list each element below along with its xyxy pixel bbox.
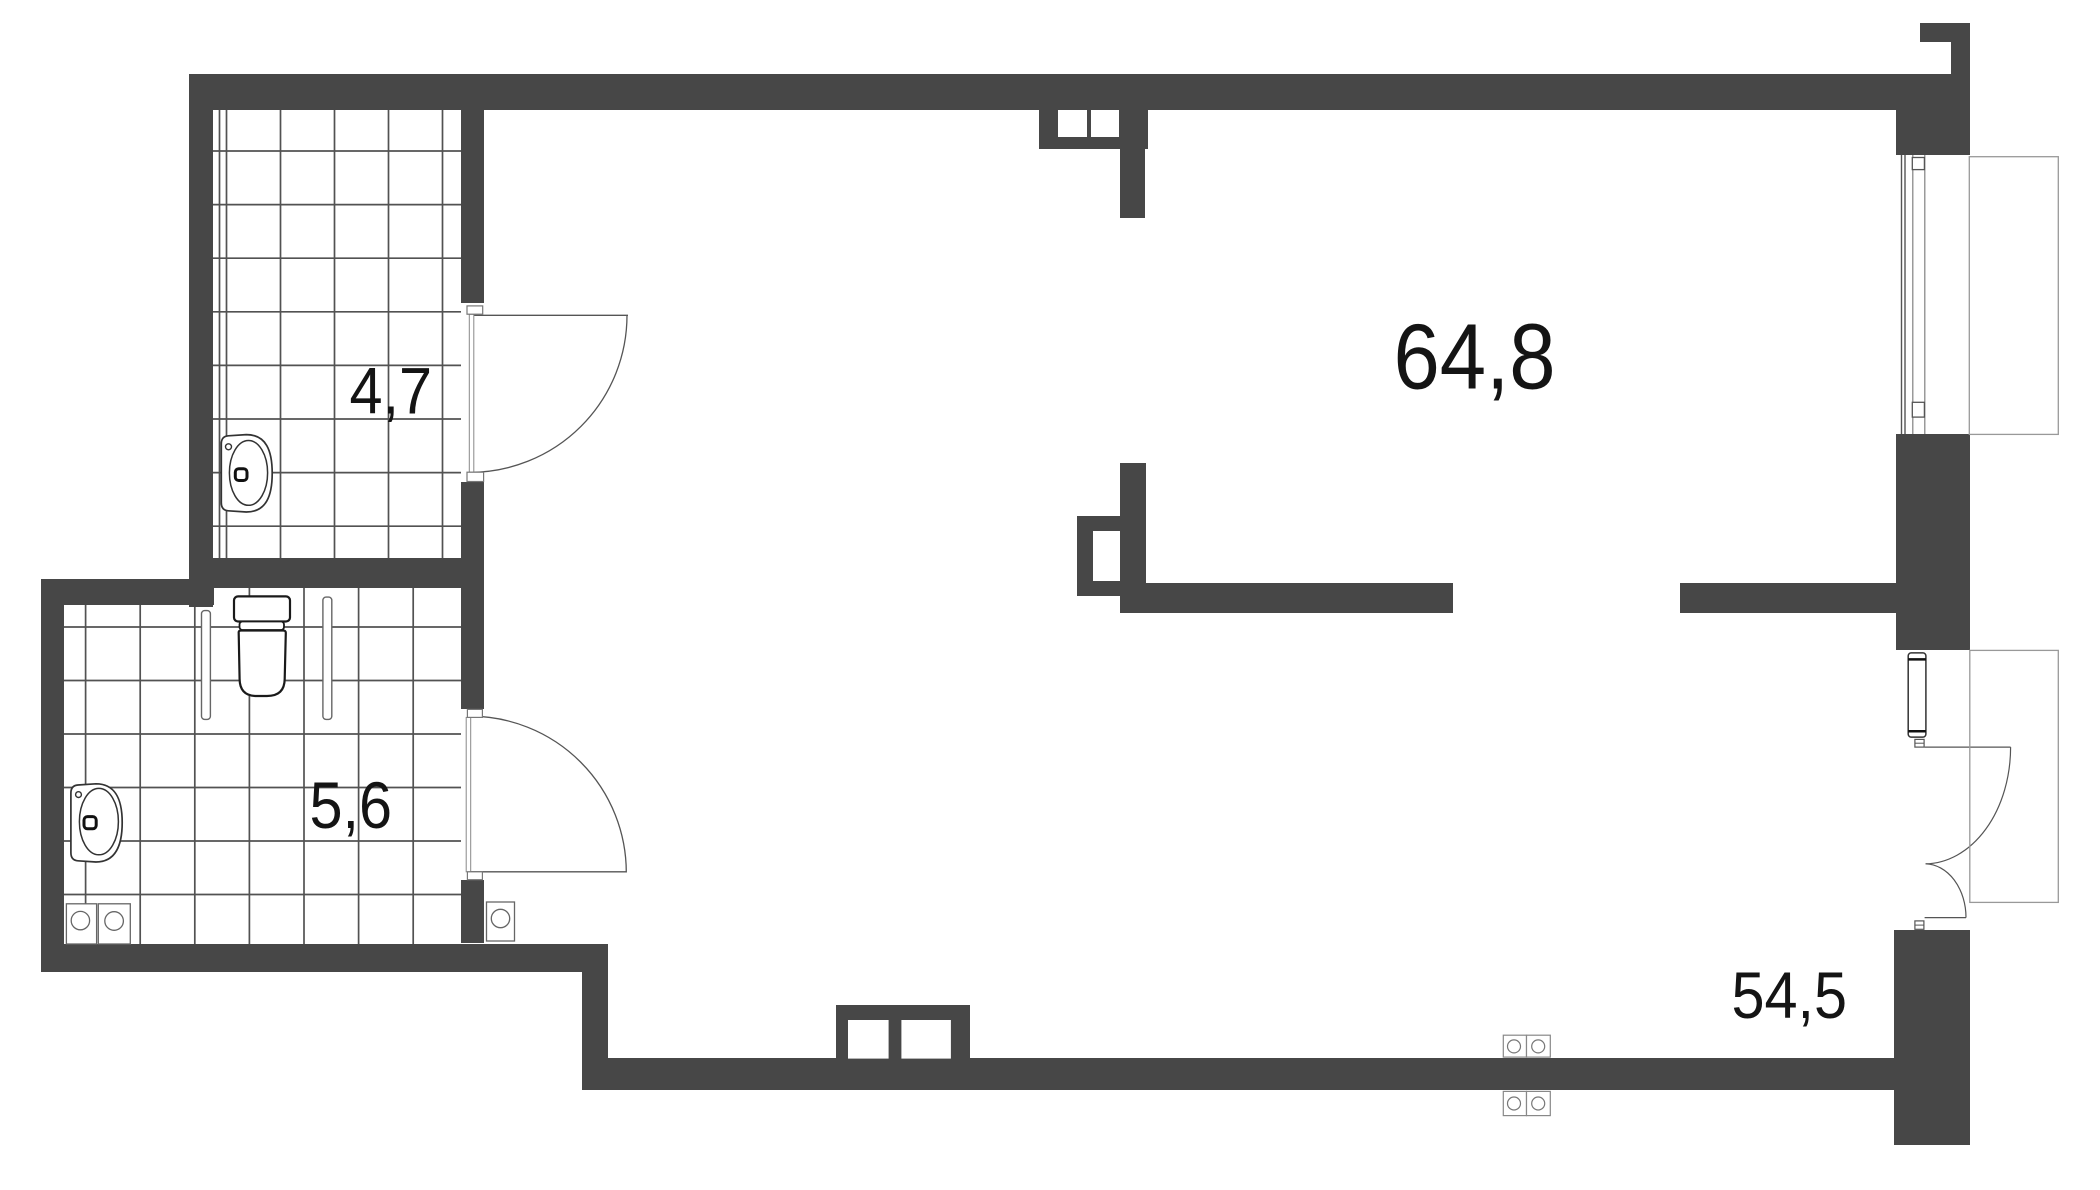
svg-text:54,5: 54,5 [1732, 959, 1848, 1033]
svg-text:64,8: 64,8 [1394, 304, 1556, 408]
svg-text:4,7: 4,7 [350, 355, 433, 429]
svg-text:5,6: 5,6 [310, 769, 393, 843]
